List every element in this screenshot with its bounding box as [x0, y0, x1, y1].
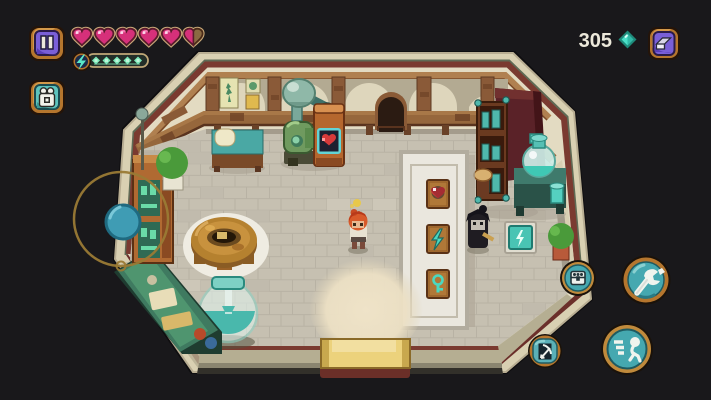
svg-text:305: 305	[579, 30, 612, 52]
